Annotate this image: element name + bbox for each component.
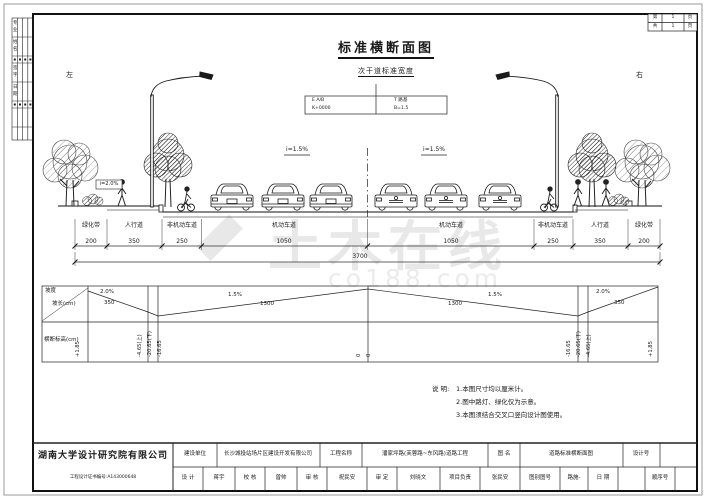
drawing-title: 标准横断面图 bbox=[338, 42, 434, 59]
drawing-sheet: 土木在线 co188.com bbox=[0, 0, 706, 500]
drawing-subtitle: 次干道标准宽度 bbox=[358, 68, 414, 77]
dim-value: 1050 bbox=[276, 239, 291, 245]
tb-owner: 长沙城投站场片区建设开发有限公司 bbox=[224, 452, 312, 458]
page-number: 1 bbox=[672, 25, 675, 30]
lane-label: 人行道 bbox=[591, 223, 609, 229]
strip-char: 签 bbox=[13, 67, 18, 72]
right-side-label: 右 bbox=[636, 72, 643, 79]
strip-char: 专 bbox=[13, 22, 18, 27]
note-line: 1.本图尺寸均以厘米计。 bbox=[456, 386, 527, 393]
note-line: 2.图中路灯、绿化仅为示意。 bbox=[456, 399, 540, 406]
segment-slope: 2.0% bbox=[596, 290, 610, 296]
cross-section bbox=[43, 72, 670, 217]
car-icon bbox=[479, 184, 521, 210]
notes-title: 说 明: bbox=[432, 386, 449, 393]
dim-value: 200 bbox=[85, 239, 96, 245]
dim-total: 3700 bbox=[352, 254, 367, 260]
elevation-value: 0 bbox=[367, 323, 372, 357]
tb-label: 顺序号 bbox=[652, 476, 669, 482]
design-certificate-no: 工程设计证书编号:A143000648 bbox=[70, 476, 136, 481]
cyclist-icon bbox=[541, 187, 558, 211]
stake-marker-l1: E A/B bbox=[312, 99, 324, 104]
slope-table-header-slope: 坡度 bbox=[45, 289, 56, 295]
elevation-value: -16.65 bbox=[158, 323, 163, 357]
tb-drawing-name: 道路标准横断面图 bbox=[549, 452, 593, 458]
lane-label: 机动车道 bbox=[439, 223, 463, 229]
dim-value: 250 bbox=[176, 239, 187, 245]
tb-name: 刘晓文 bbox=[410, 476, 427, 482]
lane-label: 非机动车道 bbox=[538, 223, 568, 229]
elevation-value: -20.65(下) bbox=[577, 323, 582, 357]
dim-value: 350 bbox=[128, 239, 139, 245]
tb-name: 曾帅 bbox=[275, 476, 286, 482]
tb-project-name: 潘家坪路(芙蓉路~东风路)道路工程 bbox=[382, 452, 468, 458]
note-line: 3.本图须结合交叉口竖向设计图使用。 bbox=[456, 412, 566, 419]
lane-label: 绿化带 bbox=[635, 223, 653, 229]
slope-label-right: i=1.5% bbox=[423, 147, 445, 153]
tb-label: 项目负责 bbox=[449, 476, 471, 482]
elevation-value: -20.65(下) bbox=[148, 323, 153, 357]
tb-label: 图别图号 bbox=[529, 476, 551, 482]
strip-char: 期 bbox=[13, 93, 18, 98]
car-icon bbox=[262, 184, 304, 210]
tb-label: 校 核 bbox=[244, 476, 257, 482]
shrub-icon bbox=[609, 194, 630, 206]
elevation-value: -4.65(上) bbox=[587, 323, 592, 357]
tb-name: 祝民安 bbox=[339, 476, 356, 482]
dim-value: 1050 bbox=[443, 239, 458, 245]
page-label: 共 bbox=[653, 25, 658, 30]
page-label: 页 bbox=[688, 16, 693, 21]
tb-label: 设 计 bbox=[182, 476, 195, 482]
slope-table-header-elev: 横断标高(cm) bbox=[44, 338, 79, 344]
segment-slope: 1.5% bbox=[228, 293, 242, 299]
segment-length: 350 bbox=[614, 301, 625, 307]
dim-value: 200 bbox=[638, 239, 649, 245]
car-icon bbox=[310, 184, 352, 210]
sidewalk-slope-label: i=2.0% bbox=[100, 182, 119, 187]
segment-slope: 1.5% bbox=[488, 293, 502, 299]
slope-profile-line bbox=[88, 287, 658, 316]
stake-marker-r2: B=1.5 bbox=[394, 107, 408, 112]
tb-label: 设计号 bbox=[633, 452, 650, 458]
elevation-value: +1.85 bbox=[76, 323, 81, 357]
segment-length: 1300 bbox=[260, 302, 274, 308]
tb-label: 日 期 bbox=[597, 476, 610, 482]
car-icon bbox=[375, 184, 417, 210]
dim-value: 250 bbox=[547, 239, 558, 245]
elevation-value: -16.65 bbox=[567, 323, 572, 357]
elevation-value: 0 bbox=[357, 323, 362, 357]
segment-slope: 2.0% bbox=[100, 290, 114, 296]
strip-char: 业 bbox=[13, 29, 18, 34]
tb-name: 蒋宇 bbox=[213, 476, 224, 482]
strip-char: 日 bbox=[13, 86, 18, 91]
pedestrian-icon bbox=[574, 180, 582, 206]
lane-label: 人行道 bbox=[125, 223, 143, 229]
left-side-label: 左 bbox=[66, 72, 73, 79]
signoff-strip bbox=[12, 18, 33, 140]
tb-label: 工程名称 bbox=[330, 452, 352, 458]
stake-marker-l2: K+0000 bbox=[312, 107, 331, 112]
page-label: 页 bbox=[688, 25, 693, 30]
strip-char: 名 bbox=[13, 48, 18, 53]
car-icon bbox=[425, 184, 467, 210]
lane-label: 机动车道 bbox=[272, 223, 296, 229]
tree-icon bbox=[568, 133, 616, 207]
lane-label: 非机动车道 bbox=[167, 223, 197, 229]
tb-drawing-no: 路施- bbox=[568, 476, 581, 482]
shrub-icon bbox=[83, 194, 104, 206]
segment-length: 1300 bbox=[448, 302, 462, 308]
car-icon bbox=[211, 184, 253, 210]
slope-label-left: i=1.5% bbox=[286, 147, 308, 153]
elevation-value: +1.85 bbox=[649, 323, 654, 357]
elevation-value: -4.65(上) bbox=[138, 323, 143, 357]
page-number: 1 bbox=[672, 16, 675, 21]
tb-label: 建设单位 bbox=[184, 452, 206, 458]
dim-value: 350 bbox=[594, 239, 605, 245]
design-institute-name: 湖南大学设计研究院有限公司 bbox=[38, 452, 168, 461]
tb-label: 审 定 bbox=[376, 476, 389, 482]
lane-label: 绿化带 bbox=[82, 223, 100, 229]
slope-table-header-length: 坡长(cm) bbox=[52, 302, 76, 308]
cyclist-icon bbox=[178, 187, 195, 211]
strip-char: 姓 bbox=[13, 41, 18, 46]
tb-name: 张民安 bbox=[492, 476, 509, 482]
tb-label: 审 核 bbox=[306, 476, 319, 482]
tb-label: 图 名 bbox=[498, 452, 511, 458]
page-label: 第 bbox=[653, 16, 658, 21]
stake-marker-r1: T 路基 bbox=[394, 99, 407, 104]
strip-char: 字 bbox=[13, 74, 18, 79]
cad-linework bbox=[0, 0, 706, 500]
segment-length: 350 bbox=[104, 301, 115, 307]
